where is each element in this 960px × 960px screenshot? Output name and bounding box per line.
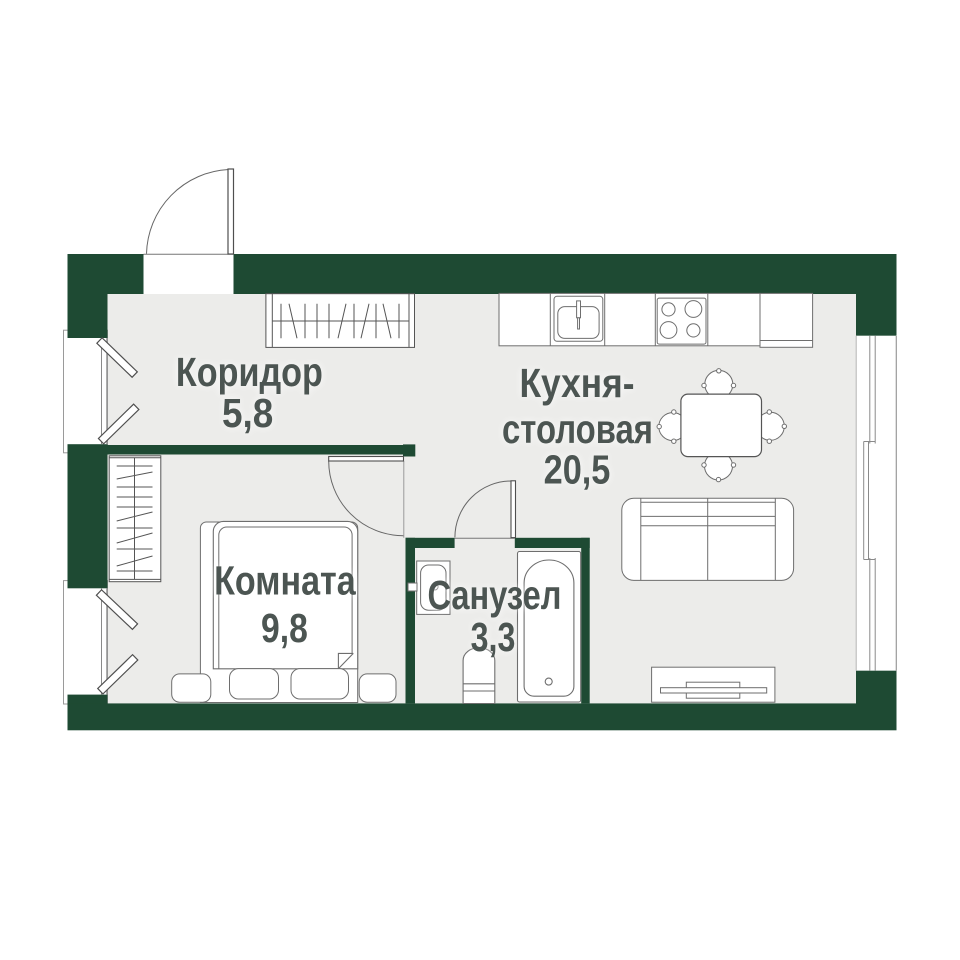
svg-text:Санузел: Санузел: [428, 572, 562, 618]
svg-text:Кухня-: Кухня-: [520, 360, 635, 406]
svg-text:3,3: 3,3: [471, 614, 516, 660]
svg-text:столовая: столовая: [502, 406, 653, 452]
svg-text:9,8: 9,8: [261, 605, 308, 651]
svg-text:Комната: Комната: [214, 557, 356, 603]
svg-text:5,8: 5,8: [222, 390, 273, 436]
svg-text:20,5: 20,5: [544, 446, 611, 492]
svg-text:Коридор: Коридор: [176, 349, 323, 395]
